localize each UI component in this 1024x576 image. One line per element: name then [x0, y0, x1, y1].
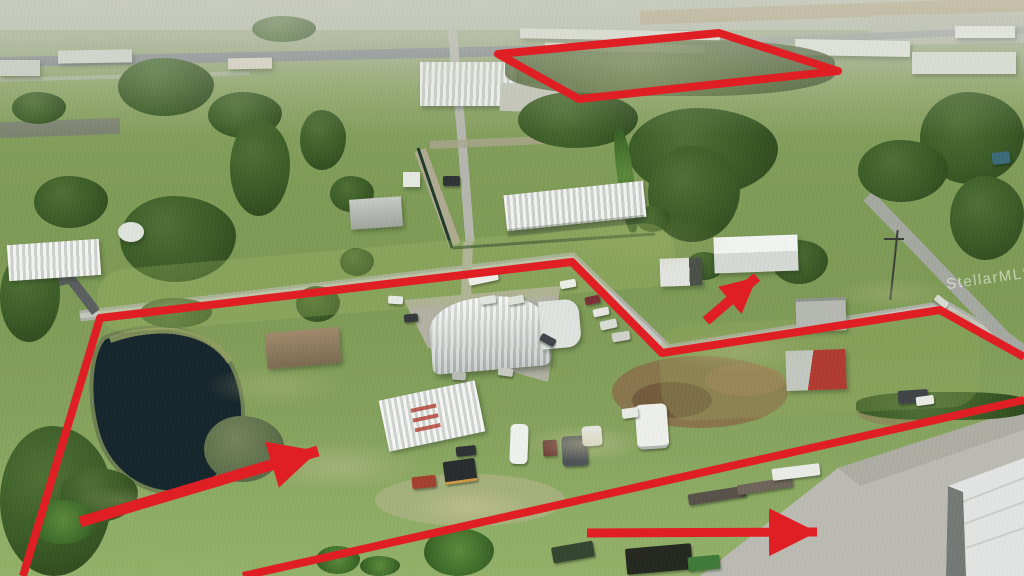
house-by-pond — [265, 327, 342, 369]
compound-gravel-path — [420, 150, 455, 245]
dark-suv — [404, 313, 419, 322]
shed-outside-fence — [403, 172, 420, 187]
truck-camper — [581, 425, 602, 446]
strip-building-left-1 — [58, 49, 132, 63]
teal-truck-top-right — [991, 151, 1010, 165]
aerial-photo: StellarMLS — [0, 0, 1024, 576]
house-northeast-arrow-target — [713, 235, 798, 274]
commercial-building-top-right-3 — [955, 26, 1015, 38]
red-barn — [785, 349, 846, 391]
car — [388, 295, 404, 304]
woods-secondary-parcel — [505, 40, 835, 96]
compound-fence-west — [418, 148, 452, 248]
dome-shed-left — [118, 222, 144, 242]
building-far-left — [7, 239, 101, 281]
maroon-pickup — [542, 440, 557, 457]
warehouse-wall — [946, 486, 966, 576]
strip-building-left-2 — [228, 58, 272, 70]
power-pole-crossarm — [884, 238, 904, 240]
dark-truck-compound — [443, 176, 460, 186]
dirt-patch-center — [375, 474, 565, 526]
access-road-north — [452, 26, 470, 242]
strip-mall-far-left — [0, 60, 40, 76]
dark-suv-south — [456, 445, 477, 457]
equipment — [452, 372, 467, 381]
box-trailer-south — [443, 458, 478, 485]
gray-shed-right — [795, 297, 846, 332]
shed-northeast — [660, 257, 703, 286]
camper-vertical — [509, 424, 528, 465]
green-tractor — [687, 555, 720, 572]
commercial-building-top-right-2 — [912, 52, 1016, 74]
fifth-wheel-camper — [634, 403, 669, 450]
house-mid-left — [349, 196, 403, 230]
red-tractor — [411, 475, 436, 489]
